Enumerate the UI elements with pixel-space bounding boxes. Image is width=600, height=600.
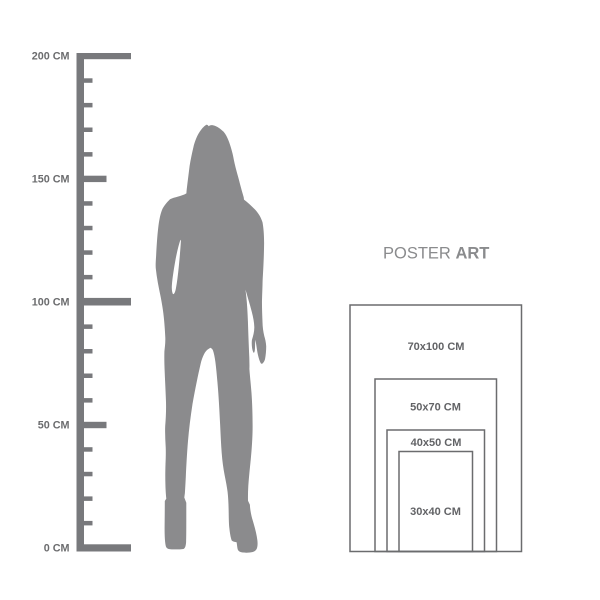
svg-text:30x40 CM: 30x40 CM xyxy=(410,506,461,518)
svg-text:100 CM: 100 CM xyxy=(32,296,70,308)
svg-text:POSTER ART: POSTER ART xyxy=(383,245,489,263)
svg-text:150 CM: 150 CM xyxy=(32,173,70,185)
svg-text:40x50 CM: 40x50 CM xyxy=(411,437,462,449)
svg-text:200 CM: 200 CM xyxy=(32,51,70,63)
svg-text:70x100 CM: 70x100 CM xyxy=(408,341,465,353)
svg-text:50 CM: 50 CM xyxy=(38,420,70,432)
svg-text:0 CM: 0 CM xyxy=(44,542,70,554)
svg-text:50x70 CM: 50x70 CM xyxy=(410,402,461,414)
